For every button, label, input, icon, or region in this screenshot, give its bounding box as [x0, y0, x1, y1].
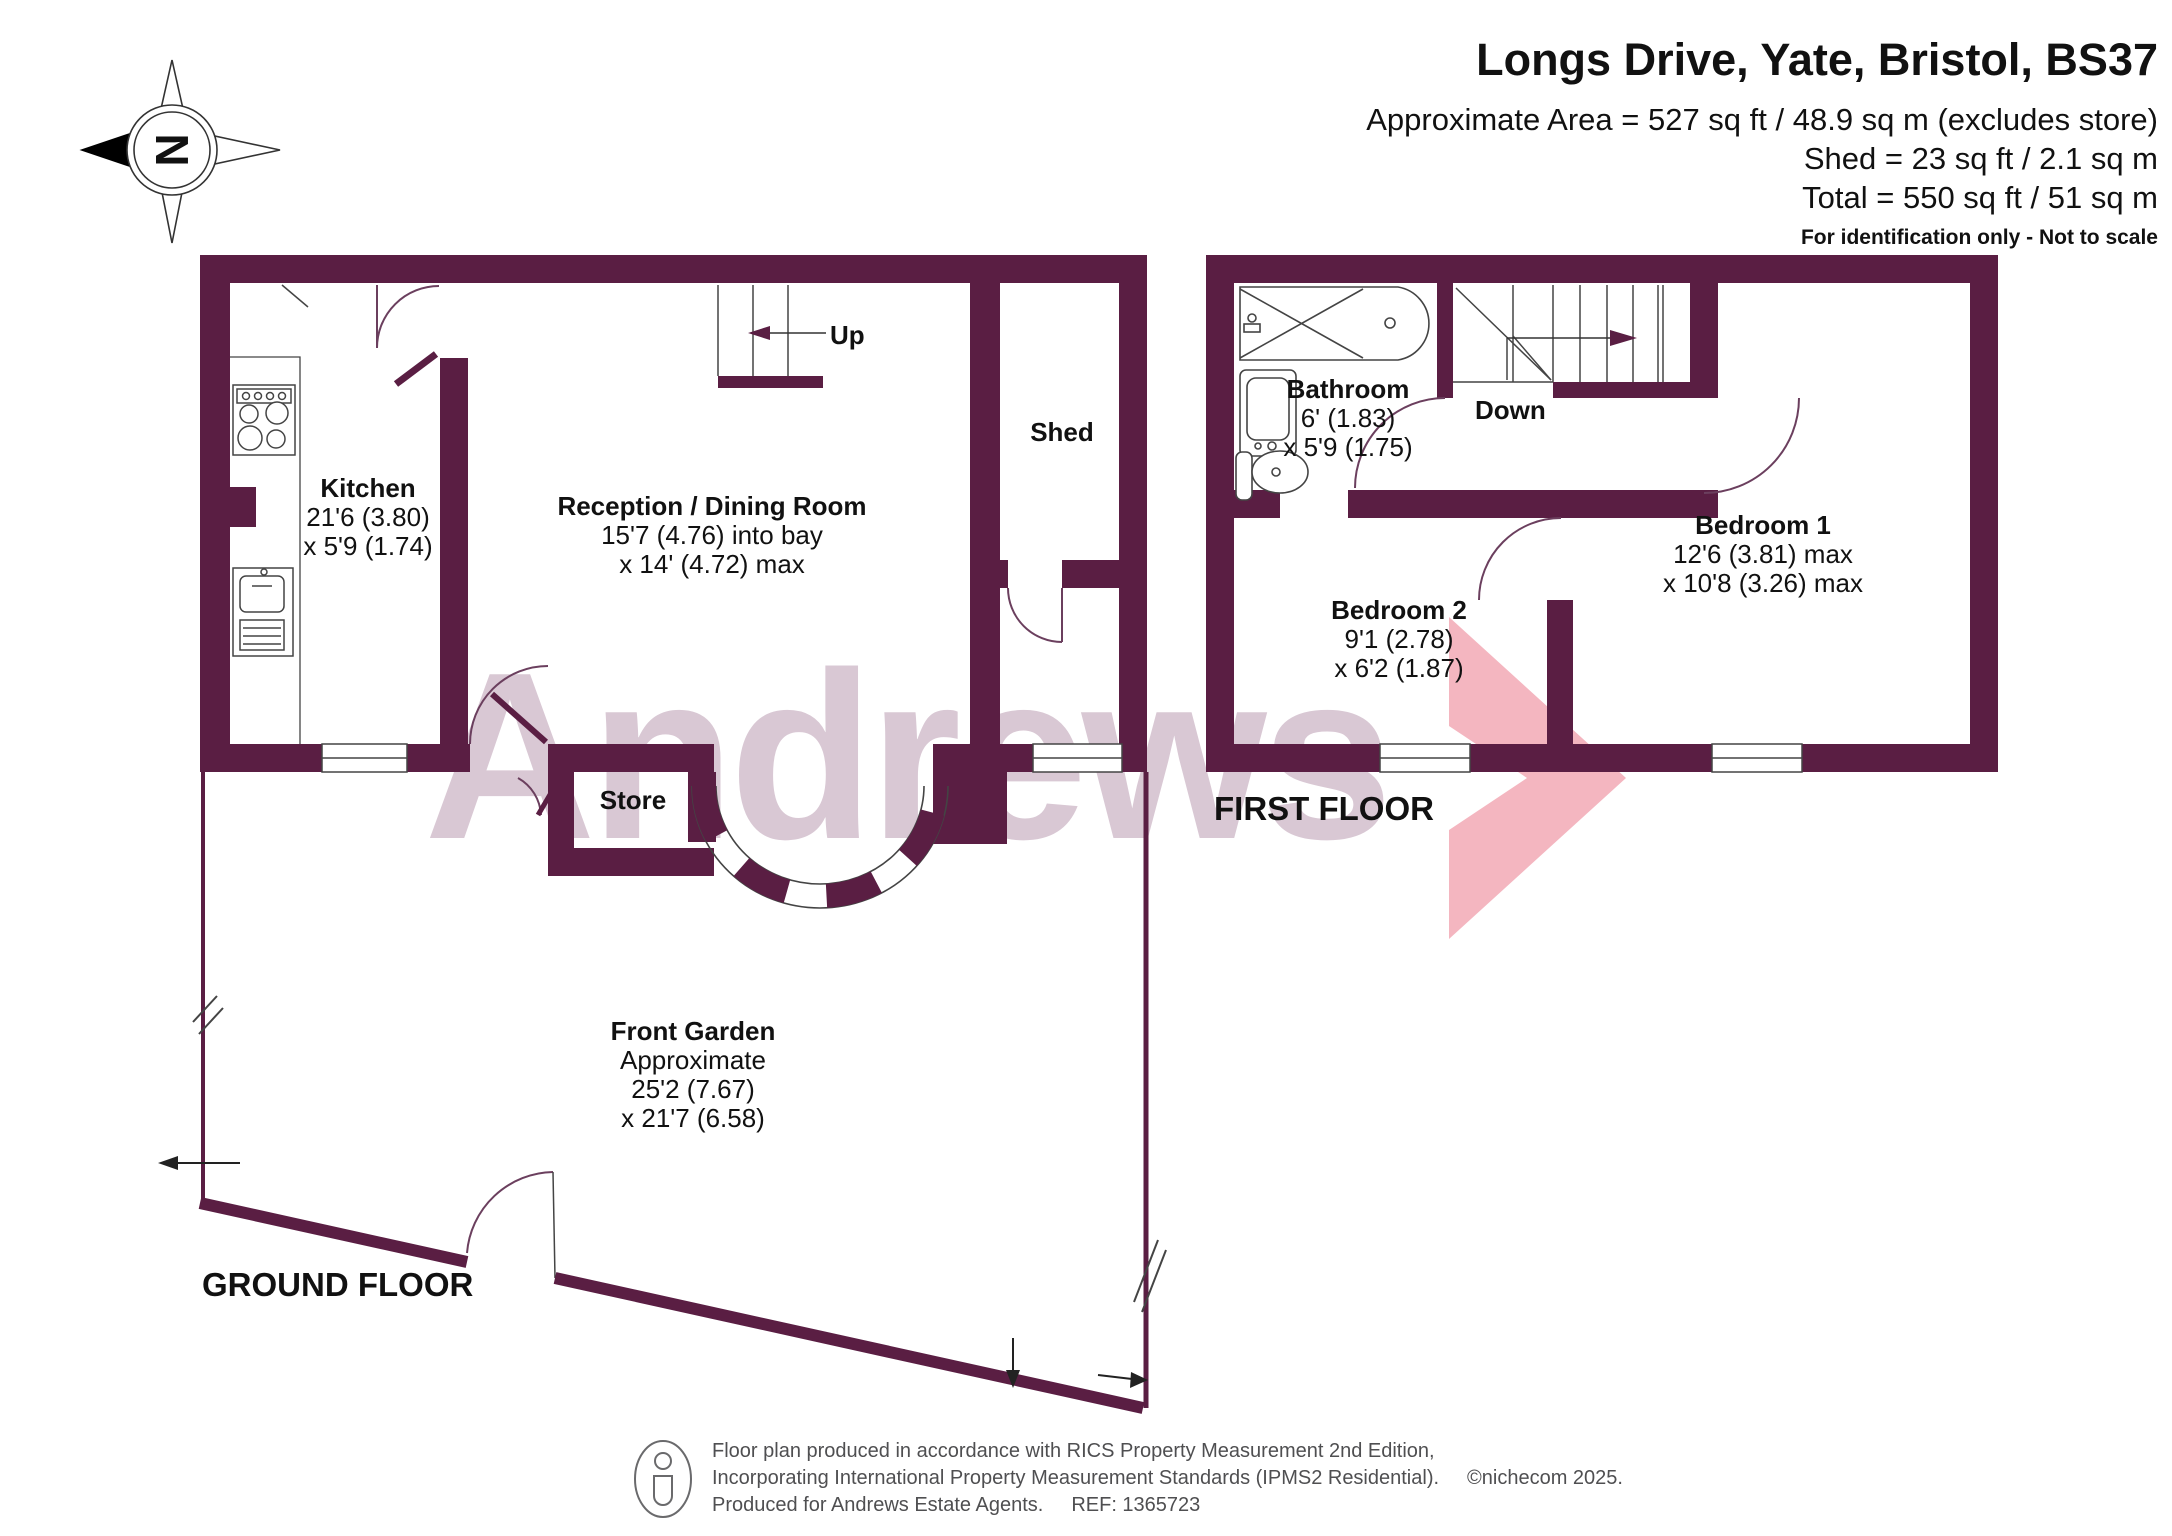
reference-number: REF: 1365723	[1071, 1494, 1200, 1516]
stairs-up	[718, 285, 826, 376]
shed-label: Shed	[1030, 418, 1094, 447]
page-title: Longs Drive, Yate, Bristol, BS37	[1366, 34, 2158, 86]
store-label: Store	[600, 786, 666, 815]
kitchen-label: Kitchen 21'6 (3.80) x 5'9 (1.74)	[303, 474, 432, 561]
person-icon	[630, 1438, 700, 1522]
footer-line1: Floor plan produced in accordance with R…	[712, 1438, 1623, 1465]
bathtub	[1240, 287, 1429, 360]
floorplan-page: Andrews N	[0, 0, 2172, 1536]
stairs-down	[1453, 285, 1663, 382]
disclaimer-line: For identification only - Not to scale	[1366, 225, 2158, 251]
ground-floor-plan	[158, 255, 1166, 1408]
front-garden-label: Front Garden Approximate 25'2 (7.67) x 2…	[611, 1017, 776, 1133]
bathroom-label: Bathroom 6' (1.83) x 5'9 (1.75)	[1283, 375, 1412, 462]
kitchen-sink	[233, 568, 293, 656]
first-floor-title: FIRST FLOOR	[1214, 790, 1434, 828]
bedroom1-label: Bedroom 1 12'6 (3.81) max x 10'8 (3.26) …	[1663, 511, 1863, 598]
shed-area-line: Shed = 23 sq ft / 2.1 sq m	[1366, 139, 2158, 178]
stairs-down-label: Down	[1475, 395, 1546, 426]
ground-floor-title: GROUND FLOOR	[202, 1266, 473, 1304]
compass-north-icon: N	[82, 60, 280, 243]
first-floor-plan	[1206, 255, 1998, 772]
header-block: Longs Drive, Yate, Bristol, BS37 Approxi…	[1366, 34, 2158, 251]
bay-window	[692, 786, 948, 908]
stove	[233, 385, 295, 455]
reception-label: Reception / Dining Room 15'7 (4.76) into…	[557, 492, 866, 579]
stairs-up-label: Up	[830, 320, 865, 351]
approx-area-line: Approximate Area = 527 sq ft / 48.9 sq m…	[1366, 100, 2158, 139]
total-area-line: Total = 550 sq ft / 51 sq m	[1366, 178, 2158, 217]
footer-block: Floor plan produced in accordance with R…	[712, 1438, 1623, 1519]
svg-text:N: N	[146, 133, 198, 166]
footer-line3: Produced for Andrews Estate Agents.REF: …	[712, 1492, 1623, 1519]
bedroom2-label: Bedroom 2 9'1 (2.78) x 6'2 (1.87)	[1331, 596, 1467, 683]
footer-line2: Incorporating International Property Mea…	[712, 1465, 1623, 1492]
copyright-text: ©nichecom 2025.	[1467, 1467, 1623, 1489]
